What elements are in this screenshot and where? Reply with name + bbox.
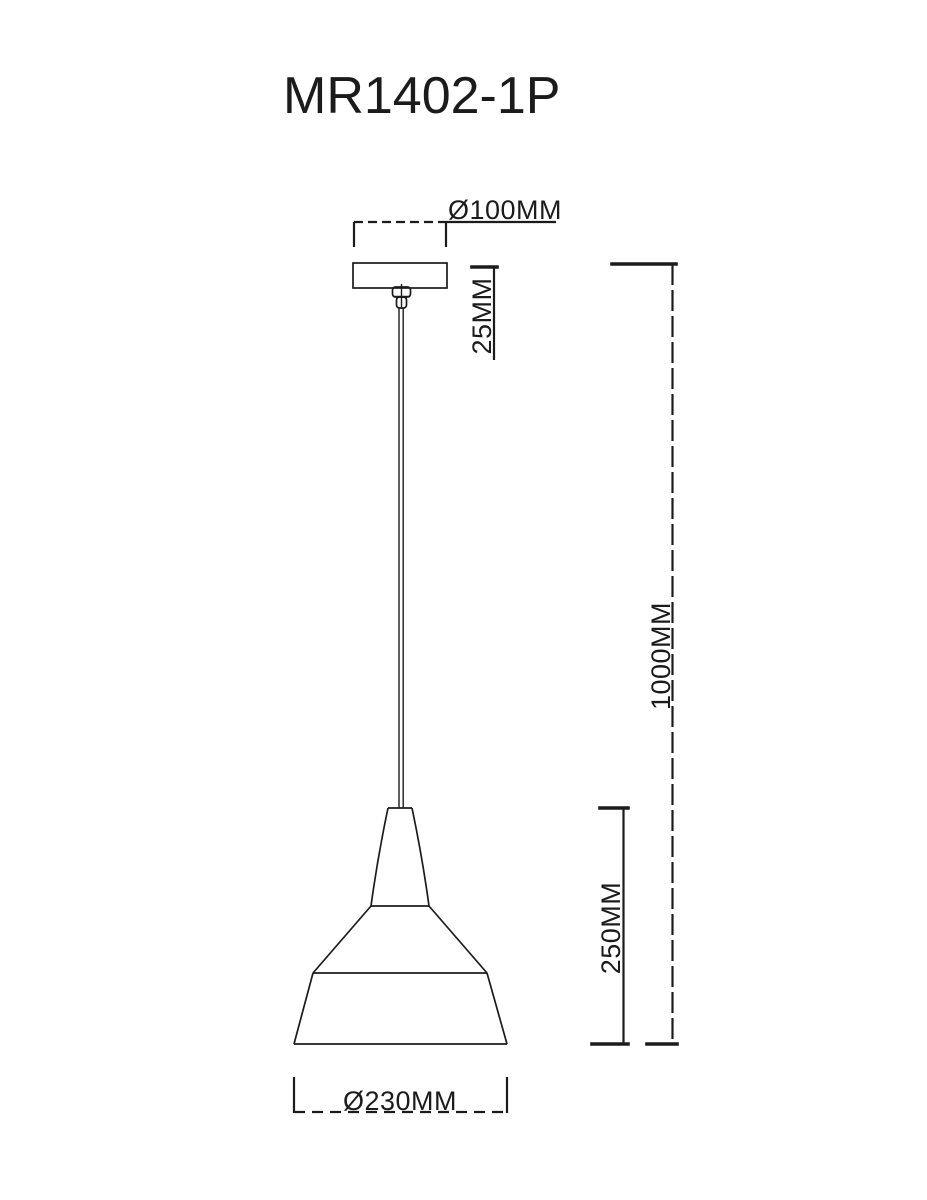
model-number-title: MR1402-1P xyxy=(283,67,560,125)
dimension-shade-height: 250MM xyxy=(592,808,628,1044)
shade-skirt-right xyxy=(487,973,507,1044)
shade-height-label: 250MM xyxy=(596,882,626,975)
dimension-shade-diameter: Ø230MM xyxy=(294,1077,507,1116)
suspension-cord xyxy=(399,308,403,808)
ceiling-canopy xyxy=(353,263,447,288)
canopy-diameter-label: Ø100MM xyxy=(448,195,562,225)
cord-grip xyxy=(393,284,411,308)
shade-upper-cone-left xyxy=(313,906,371,973)
lamp-shade xyxy=(294,808,507,1044)
shade-neck-right xyxy=(412,808,429,906)
technical-drawing-page: MR1402-1P Ø100MM 25MM xyxy=(0,0,927,1200)
canopy-height-label: 25MM xyxy=(467,277,497,354)
shade-upper-cone-right xyxy=(429,906,487,973)
shade-diameter-label: Ø230MM xyxy=(343,1086,457,1116)
shade-skirt-left xyxy=(294,973,313,1044)
shade-neck-left xyxy=(371,808,388,906)
dimension-canopy-diameter: Ø100MM xyxy=(354,195,562,247)
canopy-body xyxy=(353,263,447,288)
drawing-canvas: MR1402-1P Ø100MM 25MM xyxy=(0,0,927,1200)
dimension-canopy-height: 25MM xyxy=(467,267,497,360)
overall-drop-label: 1000MM xyxy=(646,602,676,710)
